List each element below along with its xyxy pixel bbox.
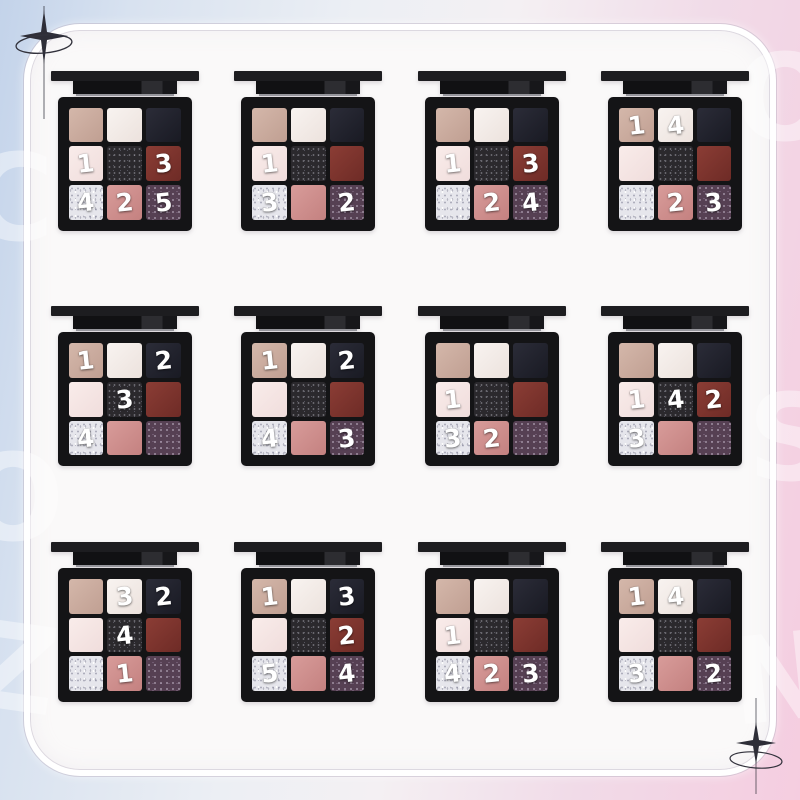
palette-lid-underside <box>623 552 727 565</box>
purple-glitter-pan: 3 <box>697 185 732 220</box>
palette-lid-underside <box>440 552 544 565</box>
pan-step-number: 2 <box>115 187 135 218</box>
charcoal-glitter-pan <box>474 382 509 417</box>
pan-step-number: 2 <box>482 187 502 218</box>
purple-glitter-pan <box>146 656 181 691</box>
brick-red-pan <box>513 382 548 417</box>
mirror-glint <box>76 94 174 96</box>
palette-7: 132 <box>418 306 566 466</box>
purple-glitter-pan: 4 <box>330 656 365 691</box>
pan-step-number: 4 <box>76 187 96 218</box>
brick-red-pan <box>697 618 732 653</box>
silver-glitter-pan: 4 <box>69 421 104 456</box>
pan-step-number: 1 <box>443 384 463 415</box>
palette-9: 3241 <box>51 542 199 702</box>
silver-glitter-pan: 3 <box>619 421 654 456</box>
mirror-glint <box>259 94 357 96</box>
pan-step-number: 2 <box>153 581 173 612</box>
cream-pan <box>474 579 509 614</box>
brick-red-pan: 3 <box>513 146 548 181</box>
palette-lid <box>234 542 382 552</box>
cream-pan <box>107 343 142 378</box>
black-pan <box>513 343 548 378</box>
black-pan <box>513 108 548 143</box>
palette-5: 1234 <box>51 306 199 466</box>
silver-glitter-pan: 4 <box>436 656 471 691</box>
palette-case: 132 <box>425 332 559 466</box>
brick-red-pan <box>146 618 181 653</box>
charcoal-glitter-pan <box>291 382 326 417</box>
pale-pink-pan <box>252 618 287 653</box>
purple-glitter-pan: 4 <box>513 185 548 220</box>
cream-pan: 4 <box>658 579 693 614</box>
palette-lid <box>234 306 382 316</box>
palette-case: 1423 <box>425 568 559 702</box>
palette-1: 13425 <box>51 71 199 231</box>
palette-lid <box>601 542 749 552</box>
pan-step-number: 2 <box>482 423 502 454</box>
pan-step-number: 1 <box>76 148 96 179</box>
mirror-glint <box>259 329 357 331</box>
palette-lid <box>418 306 566 316</box>
beige-pan: 1 <box>252 343 287 378</box>
pan-step-number: 4 <box>520 187 540 218</box>
mirror-glint <box>626 94 724 96</box>
black-pan <box>146 108 181 143</box>
palette-case: 1423 <box>608 332 742 466</box>
pan-step-number: 1 <box>259 148 279 179</box>
palette-case: 1324 <box>425 97 559 231</box>
beige-pan <box>69 579 104 614</box>
cream-pan: 4 <box>658 108 693 143</box>
pan-step-number: 2 <box>704 658 724 689</box>
black-pan <box>513 579 548 614</box>
beige-pan: 1 <box>69 343 104 378</box>
pan-step-number: 2 <box>665 187 685 218</box>
pan-step-number: 1 <box>115 658 135 689</box>
pan-step-number: 1 <box>626 110 646 141</box>
palette-lid-underside <box>73 316 177 329</box>
pan-step-number: 4 <box>665 110 685 141</box>
pan-step-number: 4 <box>259 423 279 454</box>
pale-pink-pan: 1 <box>436 618 471 653</box>
pan-step-number: 3 <box>259 187 279 218</box>
palette-lid <box>51 306 199 316</box>
charcoal-glitter-pan <box>291 618 326 653</box>
beige-pan: 1 <box>619 108 654 143</box>
rose-pan: 2 <box>107 185 142 220</box>
palette-case: 132 <box>241 97 375 231</box>
charcoal-glitter-pan <box>107 146 142 181</box>
palette-lid <box>51 71 199 81</box>
silver-glitter-pan: 3 <box>619 656 654 691</box>
pan-step-number: 4 <box>76 423 96 454</box>
pan-step-number: 3 <box>337 423 357 454</box>
pan-step-number: 2 <box>153 345 173 376</box>
purple-glitter-pan: 2 <box>330 185 365 220</box>
palette-lid-underside <box>73 81 177 94</box>
pan-step-number: 1 <box>259 345 279 376</box>
palette-lid-underside <box>73 552 177 565</box>
pan-step-number: 3 <box>115 581 135 612</box>
silver-glitter-pan: 3 <box>436 421 471 456</box>
purple-glitter-pan <box>513 421 548 456</box>
palette-lid <box>418 71 566 81</box>
black-pan: 3 <box>330 579 365 614</box>
pan-step-number: 2 <box>482 658 502 689</box>
palette-lid-underside <box>256 552 360 565</box>
charcoal-glitter-pan: 3 <box>107 382 142 417</box>
rose-pan <box>291 656 326 691</box>
mirror-glint <box>259 565 357 567</box>
black-pan: 2 <box>146 343 181 378</box>
mirror-glint <box>443 94 541 96</box>
pan-step-number: 3 <box>115 384 135 415</box>
pale-pink-pan <box>252 382 287 417</box>
brick-red-pan <box>697 146 732 181</box>
black-pan: 2 <box>146 579 181 614</box>
black-pan: 2 <box>330 343 365 378</box>
silver-glitter-pan <box>69 656 104 691</box>
cream-pan <box>107 108 142 143</box>
charcoal-glitter-pan <box>474 618 509 653</box>
palette-lid-underside <box>440 81 544 94</box>
palette-lid <box>234 71 382 81</box>
silver-glitter-pan: 4 <box>69 185 104 220</box>
purple-glitter-pan <box>697 421 732 456</box>
rose-pan: 2 <box>474 185 509 220</box>
beige-pan <box>436 579 471 614</box>
rose-pan: 1 <box>107 656 142 691</box>
purple-glitter-pan: 5 <box>146 185 181 220</box>
beige-pan <box>252 108 287 143</box>
pan-step-number: 4 <box>115 620 135 651</box>
palette-lid-underside <box>256 81 360 94</box>
palette-10: 13254 <box>234 542 382 702</box>
pale-pink-pan <box>619 146 654 181</box>
brick-red-pan: 2 <box>697 382 732 417</box>
palette-6: 1243 <box>234 306 382 466</box>
charcoal-glitter-pan <box>658 146 693 181</box>
pan-step-number: 3 <box>153 148 173 179</box>
palette-case: 1234 <box>58 332 192 466</box>
silver-glitter-pan: 5 <box>252 656 287 691</box>
cream-pan <box>658 343 693 378</box>
palette-8: 1423 <box>601 306 749 466</box>
palette-case: 3241 <box>58 568 192 702</box>
palette-2: 132 <box>234 71 382 231</box>
pan-step-number: 2 <box>337 187 357 218</box>
mirror-glint <box>443 565 541 567</box>
pale-pink-pan: 1 <box>436 146 471 181</box>
pan-step-number: 1 <box>259 581 279 612</box>
black-pan <box>330 108 365 143</box>
pan-step-number: 3 <box>626 658 646 689</box>
palette-11: 1423 <box>418 542 566 702</box>
pan-step-number: 2 <box>337 620 357 651</box>
rose-pan: 2 <box>474 421 509 456</box>
pale-pink-pan: 1 <box>252 146 287 181</box>
palette-lid-underside <box>440 316 544 329</box>
silver-glitter-pan <box>436 185 471 220</box>
cream-pan <box>474 343 509 378</box>
charcoal-glitter-pan: 4 <box>107 618 142 653</box>
palette-lid-underside <box>623 81 727 94</box>
mirror-glint <box>626 565 724 567</box>
pan-step-number: 1 <box>443 148 463 179</box>
pan-step-number: 3 <box>443 423 463 454</box>
pan-step-number: 4 <box>337 658 357 689</box>
pan-step-number: 4 <box>665 384 685 415</box>
palette-case: 1423 <box>608 97 742 231</box>
palette-grid: 1342513213241423123412431321423324113254… <box>33 33 767 740</box>
beige-pan <box>436 343 471 378</box>
black-pan <box>697 343 732 378</box>
pale-pink-pan <box>619 618 654 653</box>
palette-lid <box>51 542 199 552</box>
rose-pan <box>291 185 326 220</box>
brick-red-pan: 2 <box>330 618 365 653</box>
cream-pan: 3 <box>107 579 142 614</box>
charcoal-glitter-pan <box>291 146 326 181</box>
palette-4: 1423 <box>601 71 749 231</box>
pan-step-number: 2 <box>337 345 357 376</box>
palette-12: 1432 <box>601 542 749 702</box>
palette-lid-underside <box>256 316 360 329</box>
palette-case: 1243 <box>241 332 375 466</box>
charcoal-glitter-pan <box>658 618 693 653</box>
pan-step-number: 5 <box>153 187 173 218</box>
palette-lid <box>418 542 566 552</box>
brick-red-pan <box>513 618 548 653</box>
rose-pan <box>658 656 693 691</box>
mirror-glint <box>76 565 174 567</box>
pan-step-number: 3 <box>337 581 357 612</box>
pan-step-number: 1 <box>626 384 646 415</box>
palette-lid-underside <box>623 316 727 329</box>
brick-red-pan <box>330 146 365 181</box>
pan-step-number: 1 <box>76 345 96 376</box>
pan-step-number: 1 <box>443 620 463 651</box>
pan-step-number: 4 <box>443 658 463 689</box>
palette-case: 13254 <box>241 568 375 702</box>
pale-pink-pan: 1 <box>619 382 654 417</box>
pan-step-number: 4 <box>665 581 685 612</box>
charcoal-glitter-pan: 4 <box>658 382 693 417</box>
mirror-glint <box>76 329 174 331</box>
beige-pan <box>69 108 104 143</box>
cream-pan <box>291 579 326 614</box>
pale-pink-pan: 1 <box>436 382 471 417</box>
pan-step-number: 2 <box>704 384 724 415</box>
pan-step-number: 3 <box>520 148 540 179</box>
rose-pan: 2 <box>658 185 693 220</box>
cream-pan <box>291 108 326 143</box>
beige-pan <box>619 343 654 378</box>
purple-glitter-pan: 2 <box>697 656 732 691</box>
palette-lid <box>601 71 749 81</box>
pan-step-number: 3 <box>626 423 646 454</box>
palette-case: 13425 <box>58 97 192 231</box>
palette-lid <box>601 306 749 316</box>
silver-glitter-pan <box>619 185 654 220</box>
silver-glitter-pan: 4 <box>252 421 287 456</box>
rose-pan: 2 <box>474 656 509 691</box>
purple-glitter-pan <box>146 421 181 456</box>
palette-case: 1432 <box>608 568 742 702</box>
rose-pan <box>291 421 326 456</box>
beige-pan <box>436 108 471 143</box>
brick-red-pan: 3 <box>146 146 181 181</box>
pan-step-number: 3 <box>704 187 724 218</box>
purple-glitter-pan: 3 <box>330 421 365 456</box>
beige-pan: 1 <box>252 579 287 614</box>
mirror-glint <box>626 329 724 331</box>
black-pan <box>697 579 732 614</box>
rose-pan <box>107 421 142 456</box>
charcoal-glitter-pan <box>474 146 509 181</box>
silver-glitter-pan: 3 <box>252 185 287 220</box>
beige-pan: 1 <box>619 579 654 614</box>
cream-pan <box>291 343 326 378</box>
brick-red-pan <box>146 382 181 417</box>
rose-pan <box>658 421 693 456</box>
pan-step-number: 5 <box>259 658 279 689</box>
pale-pink-pan <box>69 382 104 417</box>
pale-pink-pan <box>69 618 104 653</box>
purple-glitter-pan: 3 <box>513 656 548 691</box>
cream-pan <box>474 108 509 143</box>
pan-step-number: 3 <box>520 658 540 689</box>
pale-pink-pan: 1 <box>69 146 104 181</box>
black-pan <box>697 108 732 143</box>
palette-3: 1324 <box>418 71 566 231</box>
pan-step-number: 1 <box>626 581 646 612</box>
mirror-glint <box>443 329 541 331</box>
brick-red-pan <box>330 382 365 417</box>
